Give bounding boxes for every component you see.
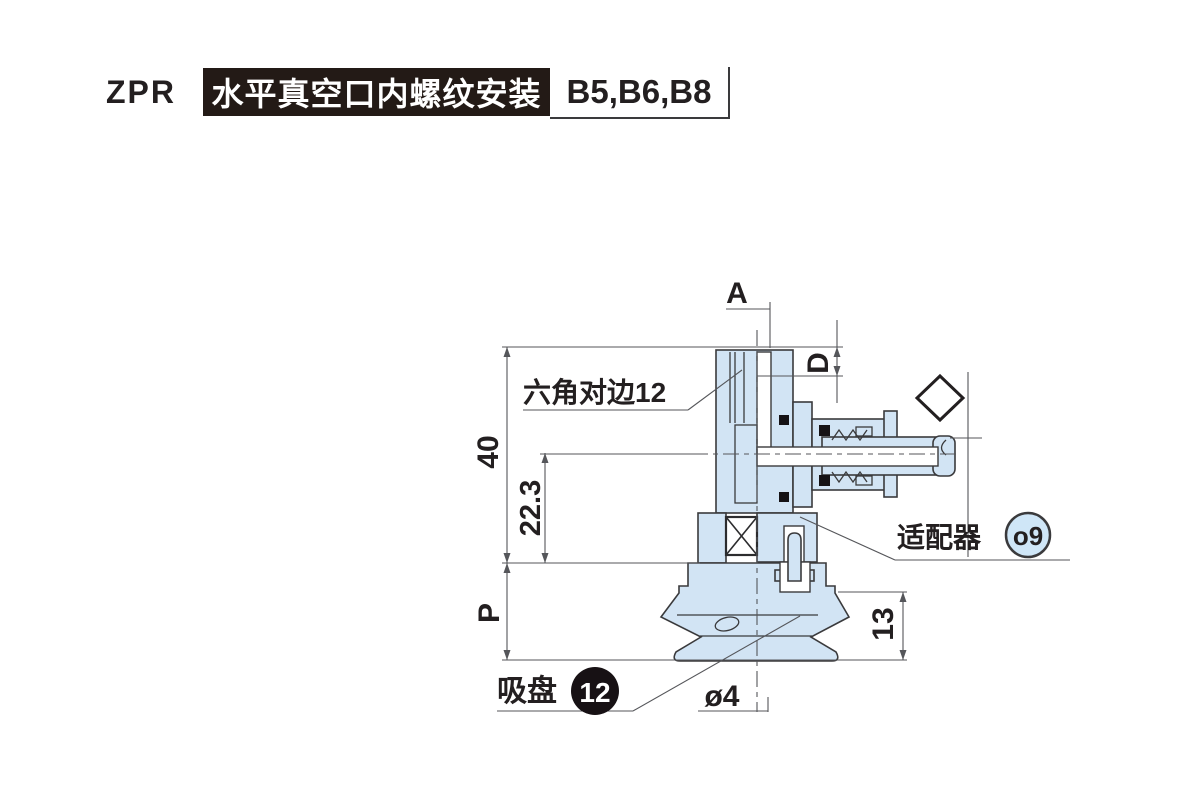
dim-22-3-label: 22.3: [515, 480, 547, 536]
pad-label: 吸盘: [497, 674, 557, 708]
suction-pad: [661, 563, 849, 661]
pad-badge-text: 12: [579, 677, 610, 708]
dim-a-label: A: [726, 277, 748, 310]
dim-40-label: 40: [472, 435, 505, 468]
holder-left: [698, 513, 726, 563]
hex-note-label: 六角对边12: [523, 376, 666, 408]
dim-dia4-label: ø4: [704, 680, 739, 713]
pad-badge: 12: [571, 667, 619, 715]
vertical-port-bore: [757, 352, 771, 449]
elbow-body: [716, 350, 793, 513]
horizontal-flow-bore: [757, 447, 938, 466]
diamond-symbol: [917, 376, 963, 420]
adapter-badge-text: o9: [1013, 521, 1043, 551]
o-ring-top: [779, 415, 789, 425]
o-ring-bottom: [779, 492, 789, 502]
dim-13-label: 13: [867, 607, 900, 640]
section-x-box: [726, 517, 757, 555]
dim-p-label: P: [473, 603, 506, 623]
adapter-badge: o9: [1006, 513, 1050, 557]
seal-bottom: [819, 475, 830, 486]
dim-d-label: D: [802, 352, 835, 374]
technical-drawing: A D 40 22.3 P 13 ø4 六角对边12 适配器 o9 吸盘 12: [0, 0, 1200, 800]
seal-top: [819, 425, 830, 436]
adapter-label: 适配器: [897, 522, 982, 553]
pad-stud: [788, 533, 801, 581]
